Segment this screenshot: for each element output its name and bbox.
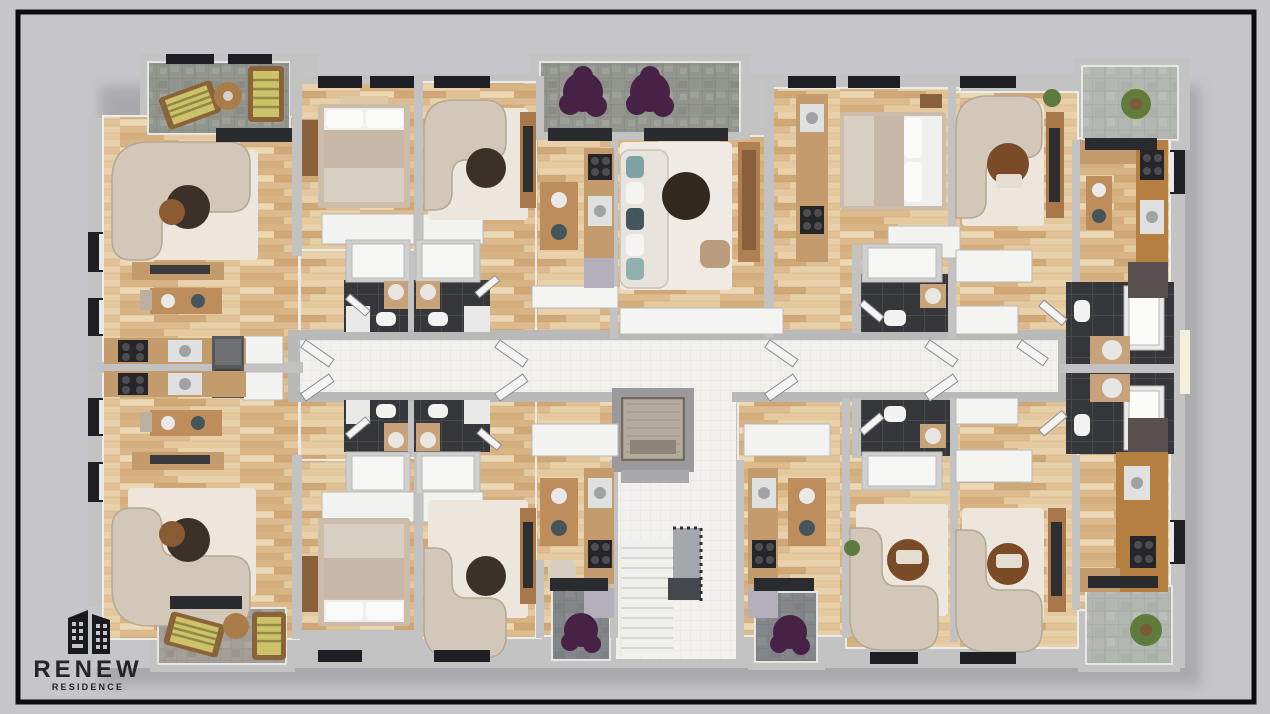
svg-text:RESIDENCE: RESIDENCE xyxy=(52,682,124,692)
svg-text:RENEW: RENEW xyxy=(33,656,142,683)
